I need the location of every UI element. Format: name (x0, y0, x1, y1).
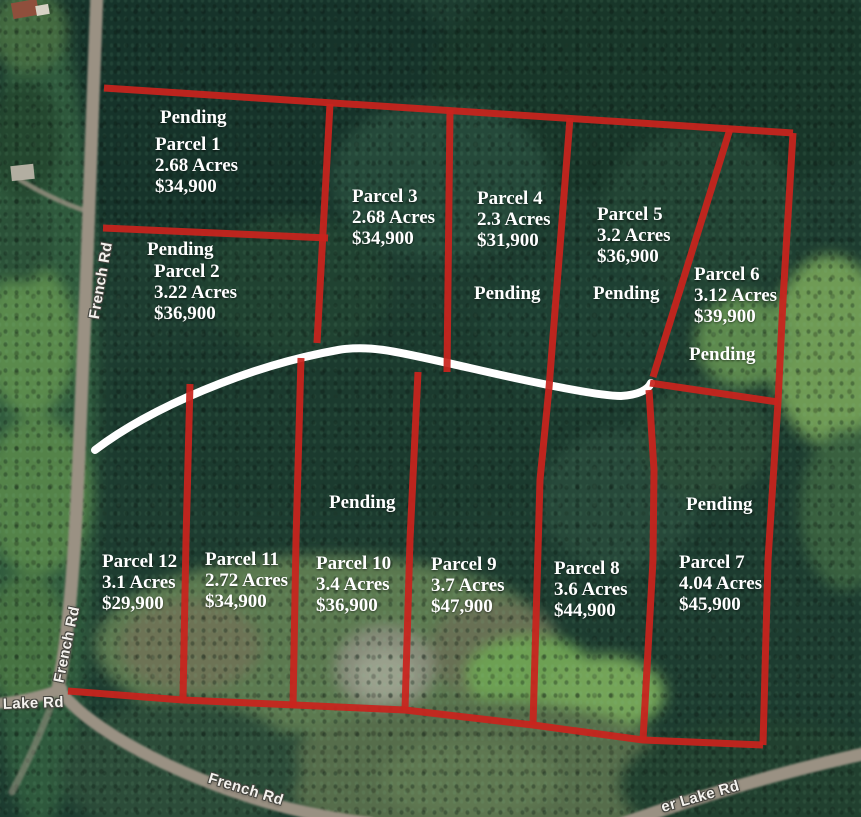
boundary-right (763, 133, 793, 745)
pending-badge: Pending (689, 344, 756, 365)
parcel-name: Parcel 2 (154, 261, 237, 282)
pending-badge: Pending (329, 492, 396, 513)
parcel-name: Parcel 11 (205, 549, 288, 570)
parcel-acres: 3.22 Acres (154, 282, 237, 303)
parcel-price: $36,900 (154, 303, 237, 324)
divider-parcel3-4 (447, 110, 450, 372)
parcel-label: Parcel 10 3.4 Acres $36,900 (316, 553, 391, 616)
parcel-label: Parcel 6 3.12 Acres $39,900 (694, 264, 777, 327)
driveway-road (20, 180, 93, 213)
parcel-label: Parcel 7 4.04 Acres $45,900 (679, 552, 762, 615)
parcel-label: Parcel 5 3.2 Acres $36,900 (597, 204, 671, 267)
boundary-bottom (68, 691, 763, 745)
divider-parcel1-2 (103, 228, 328, 238)
road-label-lake-rd-west: r Lake Rd (0, 694, 64, 714)
parcel-price: $44,900 (554, 600, 628, 621)
parcel-label: Parcel 2 3.22 Acres $36,900 (154, 261, 237, 324)
parcel-acres: 3.6 Acres (554, 579, 628, 600)
divider-parcel2-3 (317, 104, 330, 343)
parcel-price: $47,900 (431, 596, 505, 617)
houses (10, 0, 49, 181)
parcel-label: Parcel 12 3.1 Acres $29,900 (102, 551, 177, 614)
parcel-price: $34,900 (155, 176, 238, 197)
parcel-acres: 2.72 Acres (205, 570, 288, 591)
parcel-name: Parcel 7 (679, 552, 762, 573)
parcel-price: $36,900 (597, 246, 671, 267)
pending-badge: Pending (160, 107, 227, 128)
parcel-label: Parcel 8 3.6 Acres $44,900 (554, 558, 628, 621)
lake-rd-east-road (622, 753, 861, 817)
parcel-name: Parcel 8 (554, 558, 628, 579)
parcel-acres: 3.2 Acres (597, 225, 671, 246)
pending-badge: Pending (474, 283, 541, 304)
house-roof (11, 0, 39, 19)
parcel-name: Parcel 12 (102, 551, 177, 572)
parcel-price: $45,900 (679, 594, 762, 615)
parcel-acres: 2.68 Acres (352, 207, 435, 228)
parcel-label: Parcel 11 2.72 Acres $34,900 (205, 549, 288, 612)
divider-parcel12-11 (183, 384, 190, 700)
parcel-price: $34,900 (352, 228, 435, 249)
trail-white-line (95, 348, 651, 450)
parcel-acres: 3.7 Acres (431, 575, 505, 596)
parcel-name: Parcel 6 (694, 264, 777, 285)
divider-parcel11-10 (293, 358, 301, 708)
parcel-name: Parcel 10 (316, 553, 391, 574)
divider-parcel10-9 (405, 372, 418, 710)
parcel-label: Parcel 4 2.3 Acres $31,900 (477, 188, 551, 251)
parcel-name: Parcel 4 (477, 188, 551, 209)
parcel-price: $29,900 (102, 593, 177, 614)
parcel-name: Parcel 9 (431, 554, 505, 575)
parcel-acres: 2.68 Acres (155, 155, 238, 176)
parcel-satellite-map: Pending Pending Pending Pending Pending … (0, 0, 861, 817)
parcel-name: Parcel 3 (352, 186, 435, 207)
parcel-price: $36,900 (316, 595, 391, 616)
parcel-name: Parcel 5 (597, 204, 671, 225)
divider-parcel6-7 (650, 383, 778, 402)
parcel-price: $34,900 (205, 591, 288, 612)
pending-badge: Pending (147, 239, 214, 260)
parcel-price: $39,900 (694, 306, 777, 327)
parcel-name: Parcel 1 (155, 134, 238, 155)
parcel-label: Parcel 1 2.68 Acres $34,900 (155, 134, 238, 197)
parcel-acres: 3.1 Acres (102, 572, 177, 593)
pending-badge: Pending (686, 494, 753, 515)
parcel-acres: 3.4 Acres (316, 574, 391, 595)
parcel-acres: 4.04 Acres (679, 573, 762, 594)
french-rd-road (58, 0, 97, 688)
house-roof (10, 164, 34, 181)
parcel-acres: 2.3 Acres (477, 209, 551, 230)
parcel-acres: 3.12 Acres (694, 285, 777, 306)
parcel-label: Parcel 3 2.68 Acres $34,900 (352, 186, 435, 249)
divider-parcel8-7 (643, 390, 654, 740)
parcel-label: Parcel 9 3.7 Acres $47,900 (431, 554, 505, 617)
parcel-price: $31,900 (477, 230, 551, 251)
pending-badge: Pending (593, 283, 660, 304)
map-overlay (0, 0, 861, 817)
